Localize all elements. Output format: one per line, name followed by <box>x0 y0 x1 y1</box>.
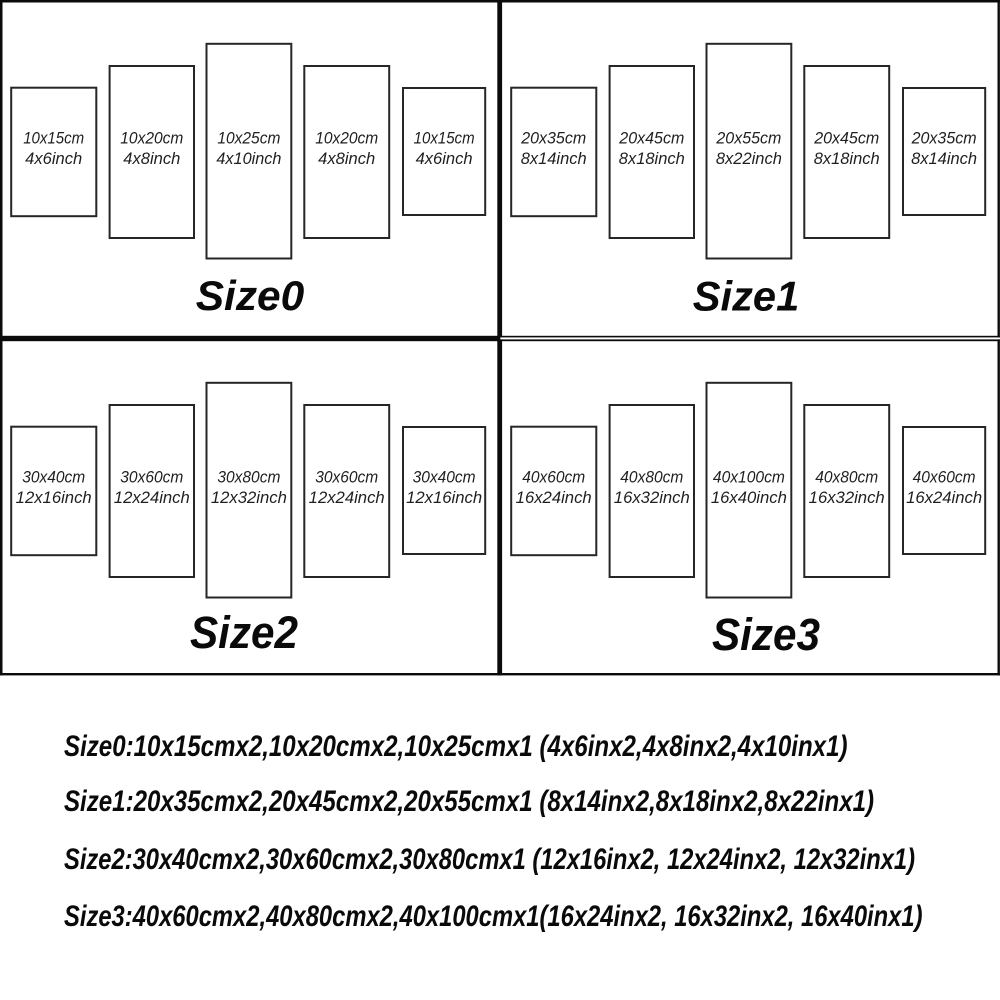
svg-text:16x32inch: 16x32inch <box>809 489 885 507</box>
svg-text:20x55cm: 20x55cm <box>715 130 781 148</box>
svg-text:16x32inch: 16x32inch <box>614 489 690 507</box>
svg-text:8x14inch: 8x14inch <box>521 150 587 168</box>
svg-text:Size0:10x15cmx2,10x20cmx2,10x2: Size0:10x15cmx2,10x20cmx2,10x25cmx1 (4x6… <box>64 730 848 763</box>
svg-text:4x8inch: 4x8inch <box>123 150 180 168</box>
svg-text:10x20cm: 10x20cm <box>315 130 378 148</box>
svg-text:30x60cm: 30x60cm <box>120 469 183 487</box>
svg-text:30x40cm: 30x40cm <box>413 469 476 487</box>
svg-text:8x22inch: 8x22inch <box>716 150 782 168</box>
svg-text:12x16inch: 12x16inch <box>16 489 92 507</box>
svg-text:20x45cm: 20x45cm <box>813 130 879 148</box>
svg-text:4x8inch: 4x8inch <box>318 150 375 168</box>
svg-text:Size3:40x60cmx2,40x80cmx2,40x1: Size3:40x60cmx2,40x80cmx2,40x100cmx1(16x… <box>64 900 923 933</box>
svg-text:20x45cm: 20x45cm <box>618 130 684 148</box>
svg-text:Size2: Size2 <box>190 607 298 658</box>
svg-text:16x24inch: 16x24inch <box>906 489 982 507</box>
svg-text:30x60cm: 30x60cm <box>315 469 378 487</box>
svg-text:8x14inch: 8x14inch <box>911 150 977 168</box>
svg-text:30x80cm: 30x80cm <box>217 469 280 487</box>
svg-text:10x15cm: 10x15cm <box>414 130 475 148</box>
svg-text:12x16inch: 12x16inch <box>406 489 482 507</box>
svg-text:16x24inch: 16x24inch <box>516 489 592 507</box>
svg-text:12x24inch: 12x24inch <box>114 489 190 507</box>
svg-text:20x35cm: 20x35cm <box>520 130 586 148</box>
svg-text:10x20cm: 10x20cm <box>120 130 183 148</box>
svg-text:30x40cm: 30x40cm <box>22 469 85 487</box>
svg-text:12x24inch: 12x24inch <box>309 489 385 507</box>
svg-text:40x60cm: 40x60cm <box>913 469 976 487</box>
svg-text:Size0: Size0 <box>196 272 305 319</box>
svg-text:16x40inch: 16x40inch <box>711 489 787 507</box>
svg-text:40x100cm: 40x100cm <box>713 469 785 487</box>
svg-text:Size1:20x35cmx2,20x45cmx2,20x5: Size1:20x35cmx2,20x45cmx2,20x55cmx1 (8x1… <box>64 785 874 818</box>
svg-text:20x35cm: 20x35cm <box>911 130 977 148</box>
svg-text:40x80cm: 40x80cm <box>620 469 683 487</box>
svg-text:12x32inch: 12x32inch <box>211 489 287 507</box>
svg-text:4x10inch: 4x10inch <box>216 150 281 168</box>
svg-text:40x80cm: 40x80cm <box>815 469 878 487</box>
svg-text:4x6inch: 4x6inch <box>25 150 82 168</box>
svg-text:10x25cm: 10x25cm <box>217 130 280 148</box>
svg-text:10x15cm: 10x15cm <box>23 130 84 148</box>
svg-text:8x18inch: 8x18inch <box>619 150 685 168</box>
svg-text:Size3: Size3 <box>712 609 820 660</box>
svg-text:4x6inch: 4x6inch <box>416 150 473 168</box>
svg-text:Size2:30x40cmx2,30x60cmx2,30x8: Size2:30x40cmx2,30x60cmx2,30x80cmx1 (12x… <box>64 843 915 876</box>
svg-text:Size1: Size1 <box>693 273 800 320</box>
svg-text:40x60cm: 40x60cm <box>522 469 585 487</box>
svg-text:8x18inch: 8x18inch <box>814 150 880 168</box>
